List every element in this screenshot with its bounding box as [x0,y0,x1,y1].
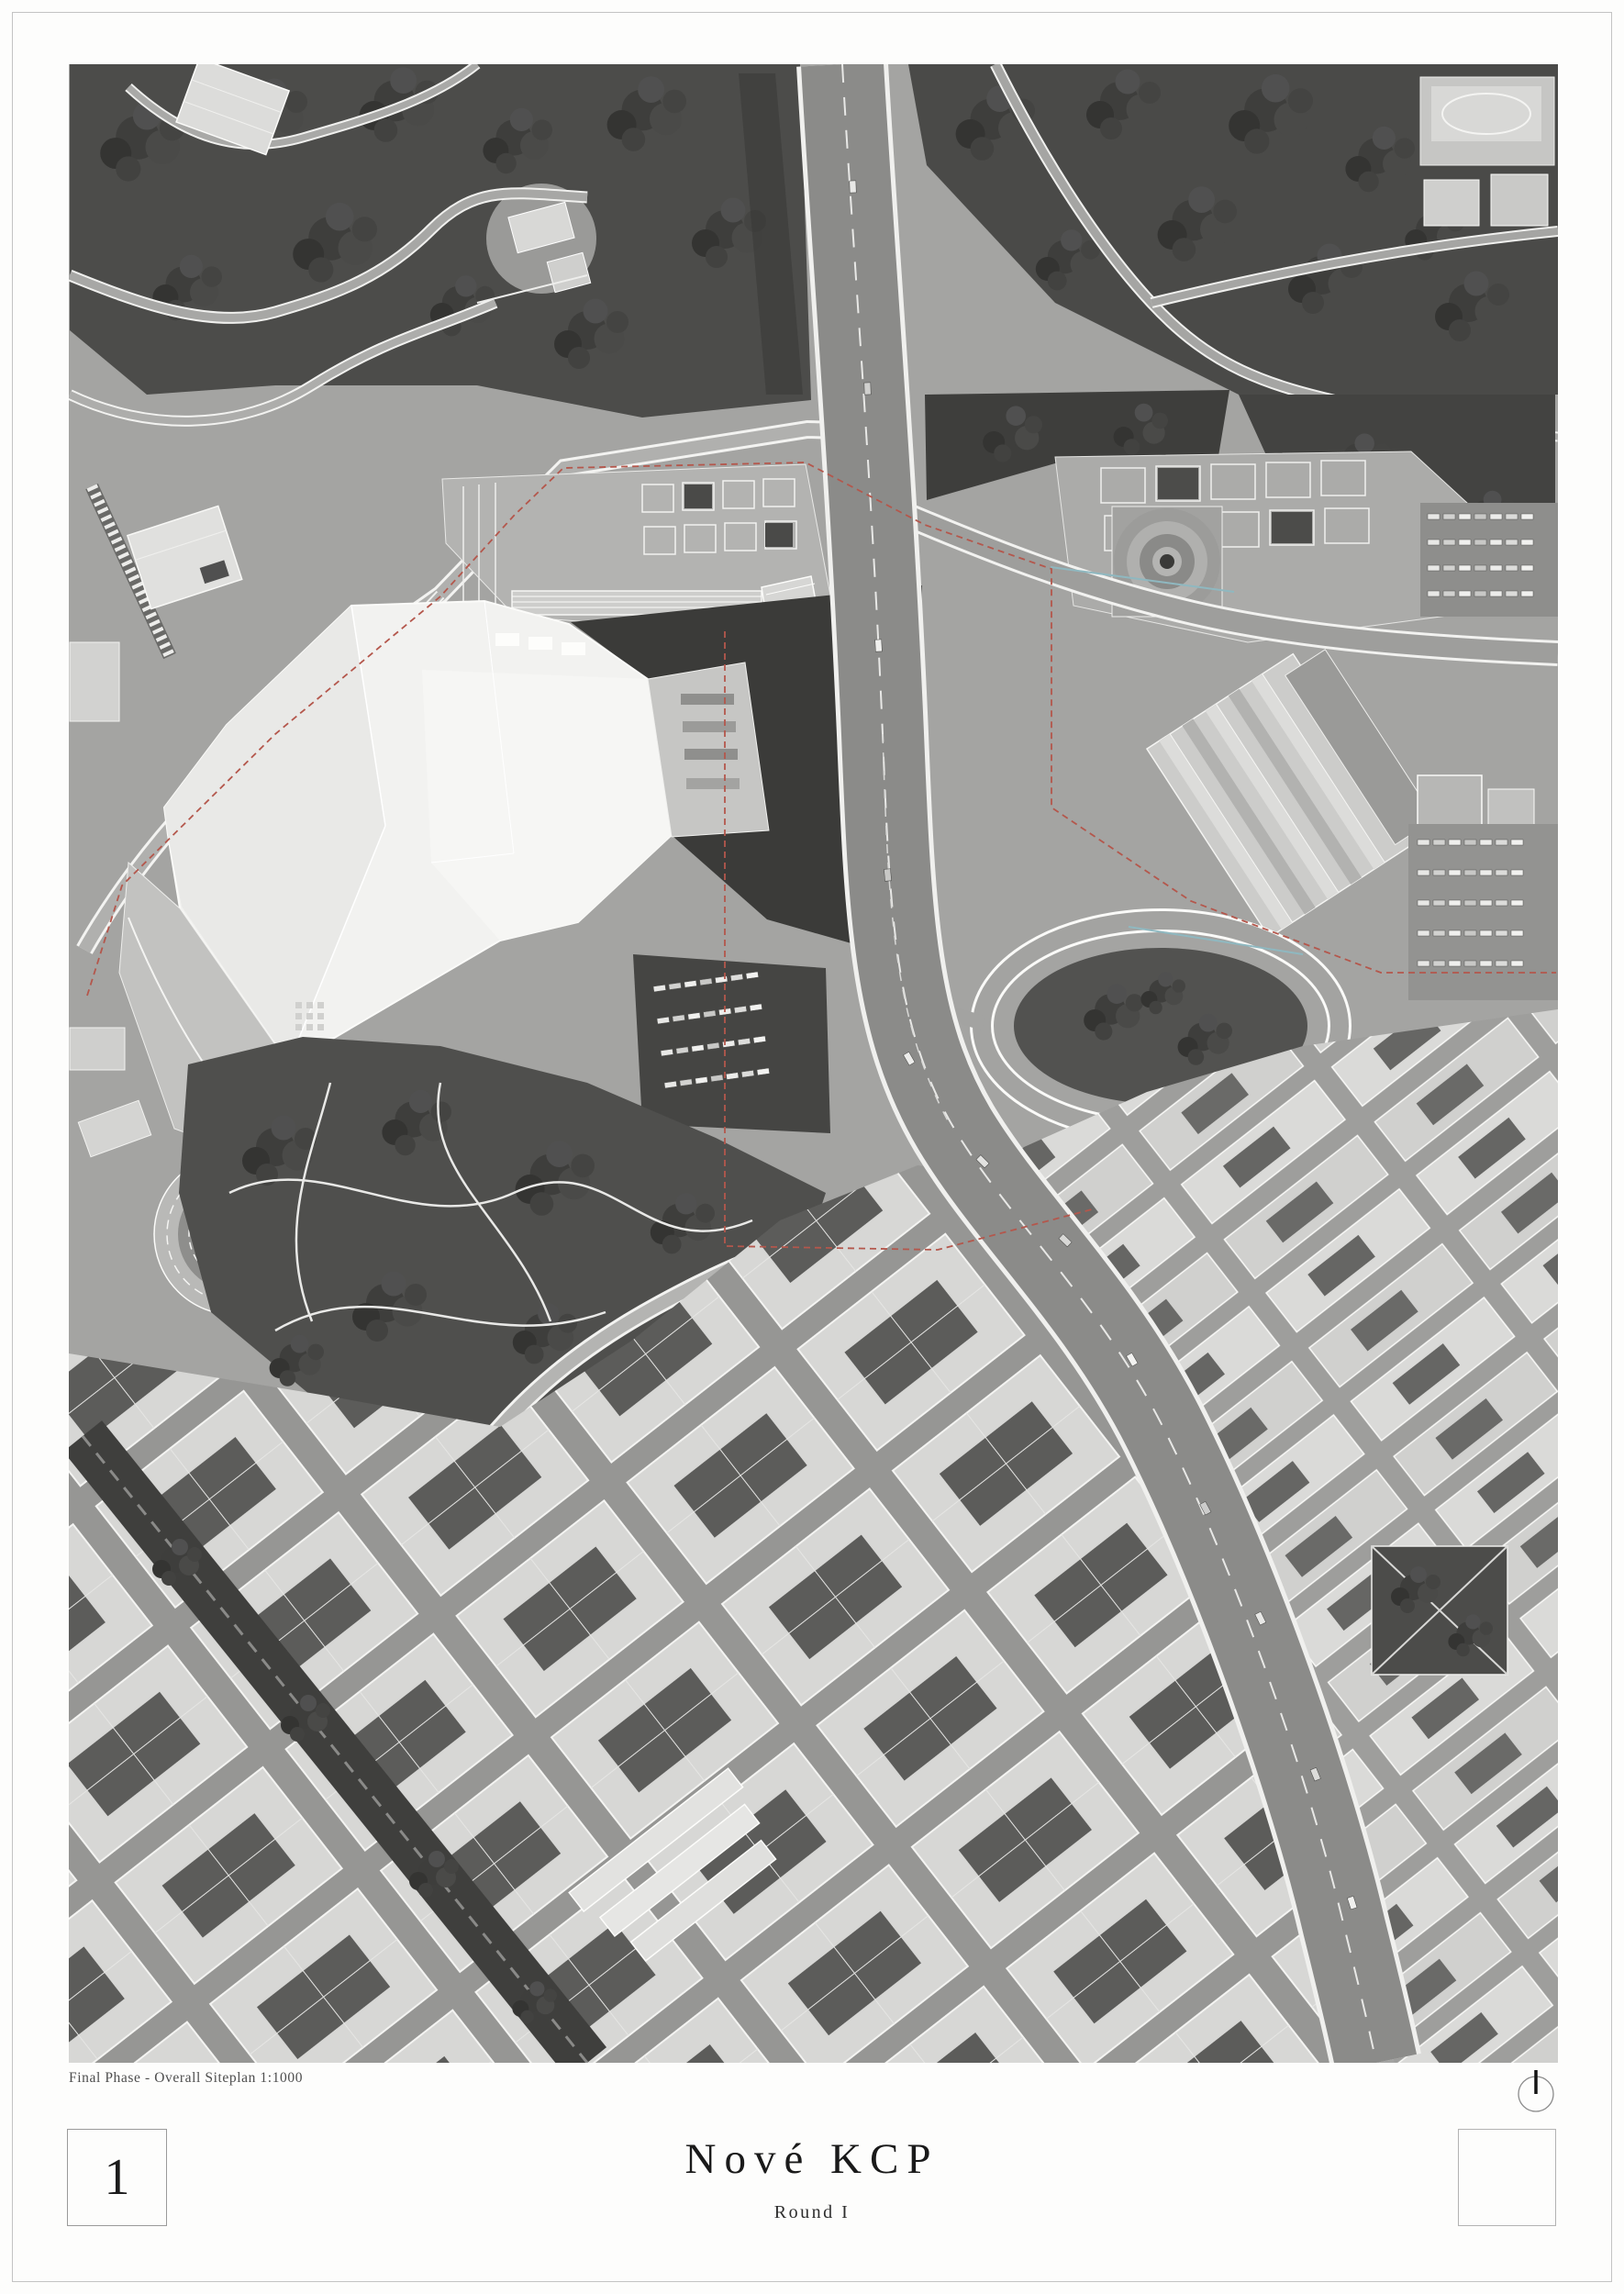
presentation-board: Final Phase - Overall Siteplan 1:1000 1 … [0,0,1624,2294]
surface-parking-east [633,954,830,1133]
siteplan-aerial-map [69,64,1558,2063]
north-arrow-icon [1515,2065,1557,2116]
board-title: Nové KCP [0,2134,1624,2184]
board-subtitle: Round I [0,2202,1624,2223]
green-square [1372,1546,1507,1675]
map-caption: Final Phase - Overall Siteplan 1:1000 [69,2070,303,2087]
revision-box [1458,2129,1556,2226]
